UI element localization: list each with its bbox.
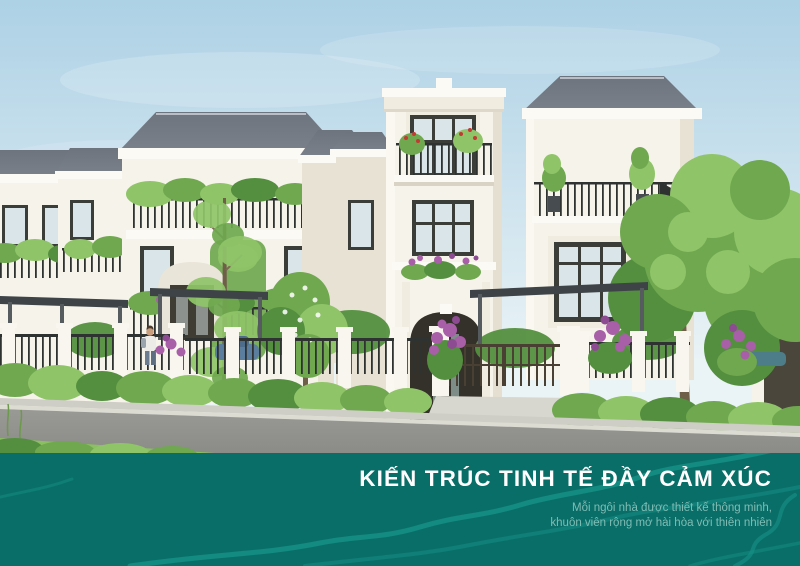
render-scene [0, 0, 800, 453]
banner-text-block: KIẾN TRÚC TINH TẾ ĐẦY CẢM XÚC Mỗi ngôi n… [359, 453, 772, 531]
banner-title: KIẾN TRÚC TINH TẾ ĐẦY CẢM XÚC [359, 466, 772, 492]
architectural-render [0, 0, 800, 453]
banner-subtitle-line2: khuôn viên rộng mở hài hòa với thiên nhi… [359, 516, 772, 531]
banner-subtitle-line1: Mỗi ngôi nhà được thiết kế thông minh, [359, 501, 772, 516]
brochure-page: KIẾN TRÚC TINH TẾ ĐẦY CẢM XÚC Mỗi ngôi n… [0, 0, 800, 566]
caption-banner: KIẾN TRÚC TINH TẾ ĐẦY CẢM XÚC Mỗi ngôi n… [0, 453, 800, 566]
